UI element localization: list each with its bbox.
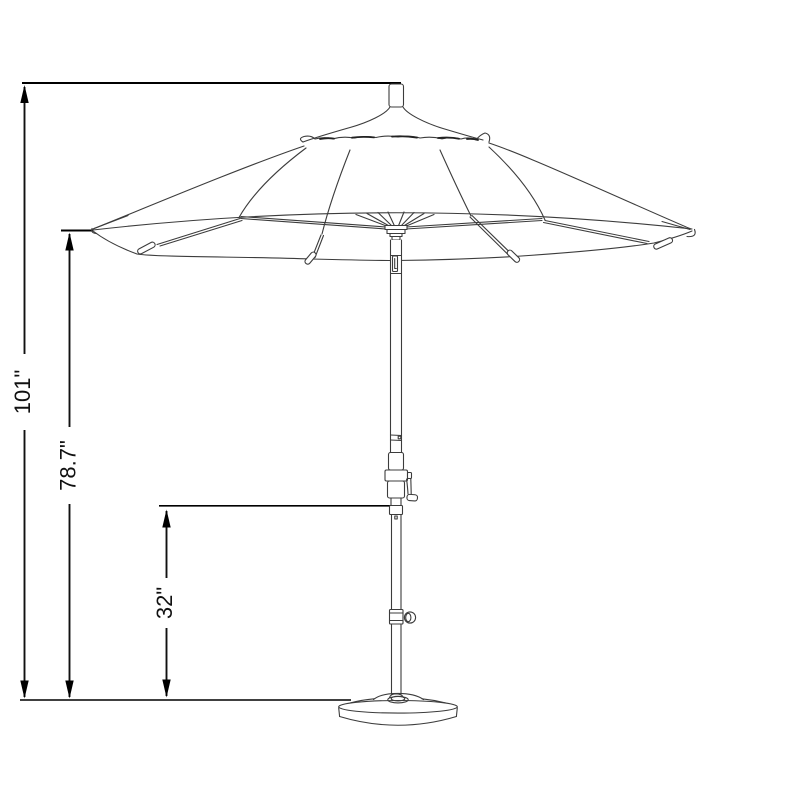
svg-text:32": 32" [152,587,177,619]
svg-text:101": 101" [10,370,35,415]
svg-text:78.7": 78.7" [56,440,81,491]
